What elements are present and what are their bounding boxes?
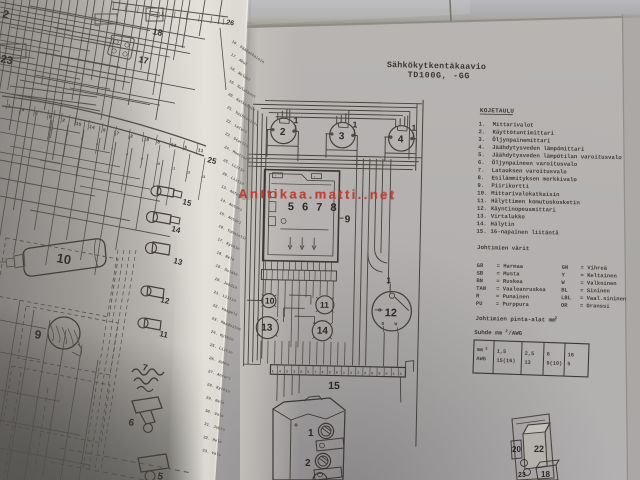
svg-text:PU: PU [476,300,483,307]
svg-text:6: 6 [336,372,338,376]
svg-text:Suhde mm: Suhde mm [474,329,502,337]
svg-text:W: W [394,321,397,327]
svg-text:8: 8 [126,154,128,158]
svg-text:Piirikortti: Piirikortti [491,182,529,190]
svg-text:= Purppura: = Purppura [496,300,530,308]
svg-text:GR: GR [477,262,484,269]
svg-text:15(16): 15(16) [496,358,515,365]
svg-text:18: 18 [541,470,550,479]
svg-text:20: 20 [512,445,521,454]
svg-text:3: 3 [400,373,402,377]
svg-text:2: 2 [305,458,311,469]
svg-text:5 6 7 8: 5 6 7 8 [288,201,339,214]
svg-text:10: 10 [265,296,275,306]
svg-text:1: 1 [353,119,358,129]
svg-text:15.: 15. [476,228,486,235]
svg-text:12: 12 [186,172,190,176]
svg-text:4: 4 [385,373,387,377]
svg-text:1.: 1. [479,121,486,128]
svg-text:mm: mm [477,347,484,353]
svg-text:9: 9 [141,158,143,162]
svg-text:Mittarivalot: Mittarivalot [493,121,534,129]
svg-text:4: 4 [279,370,281,374]
svg-text:8: 8 [378,372,380,376]
svg-text:5.: 5. [478,151,485,158]
svg-text:23: 23 [518,472,526,479]
svg-text:14: 14 [317,326,329,337]
svg-text:5: 5 [567,361,570,367]
svg-text:Sähkökytkentäkaavio: Sähkökytkentäkaavio [387,60,487,72]
svg-text:4.: 4. [478,144,485,151]
svg-text:GN: GN [562,264,569,271]
svg-text:13: 13 [261,322,273,333]
svg-text:BL: BL [561,287,568,294]
svg-text:= Sininen: = Sininen [580,287,610,295]
svg-text:9(10): 9(10) [546,360,562,367]
svg-text:10: 10 [156,163,160,167]
svg-text:SB: SB [476,270,483,277]
svg-text:3: 3 [350,372,352,376]
svg-text:2,5: 2,5 [525,351,535,357]
svg-text:1: 1 [343,372,345,376]
svg-text:3: 3 [51,128,53,132]
svg-text:TAN: TAN [476,285,486,292]
svg-text:10.: 10. [477,189,487,196]
svg-text:2: 2 [364,372,366,376]
svg-text:13: 13 [524,360,531,366]
svg-text:= Harmaa: = Harmaa [497,262,524,270]
svg-text:3: 3 [339,131,345,142]
svg-text:1: 1 [411,123,416,133]
svg-text:7.: 7. [478,167,485,174]
svg-text:3: 3 [293,371,295,375]
svg-text:6.: 6. [478,159,485,166]
svg-text:16: 16 [568,352,575,358]
svg-text:9: 9 [345,214,351,225]
svg-text:6: 6 [300,371,302,375]
svg-text:5: 5 [81,139,83,143]
svg-text:BN: BN [476,277,483,284]
svg-text:7: 7 [357,372,359,376]
svg-text:KOJETAULU: KOJETAULU [480,107,515,115]
svg-text:= Vihreä: = Vihreä [581,264,608,272]
svg-text:1: 1 [308,428,314,439]
svg-text:12: 12 [385,307,397,319]
svg-text:= Ruskea: = Ruskea [496,278,523,286]
svg-text:11.: 11. [477,197,487,204]
svg-text:↑: ↑ [313,175,315,180]
svg-text:OR: OR [561,302,568,309]
svg-text:= Oranssi: = Oranssi [580,302,611,310]
svg-text:1: 1 [386,275,391,285]
svg-text:2: 2 [280,127,286,138]
svg-text:9.: 9. [477,182,484,189]
svg-text:15: 15 [328,380,340,392]
svg-text:1: 1 [272,370,274,374]
svg-text:17: 17 [138,54,150,66]
svg-text:23: 23 [0,53,14,67]
svg-text:12.: 12. [477,205,487,212]
svg-text:14.: 14. [476,220,486,227]
svg-text:AWG: AWG [476,356,486,362]
svg-text:5: 5 [307,371,309,375]
svg-text:2.: 2. [478,128,485,135]
svg-text:3.: 3. [478,136,485,143]
svg-text:9: 9 [329,371,331,375]
svg-text:13: 13 [201,176,205,180]
svg-text:11: 11 [320,300,329,310]
svg-text:1,5: 1,5 [497,349,507,355]
svg-text:= Keltainen: = Keltainen [580,272,616,280]
svg-text:13.: 13. [477,212,487,219]
svg-text:7: 7 [314,371,316,375]
svg-text:18: 18 [152,26,164,38]
svg-text:16-napainen liitäntä: 16-napainen liitäntä [490,228,559,236]
svg-text:10: 10 [55,250,72,267]
svg-text:Virtalukko: Virtalukko [491,213,526,221]
svg-text:= Punainen: = Punainen [496,293,529,301]
svg-text:G: G [381,321,384,327]
svg-text:Johtimien värit: Johtimien värit [477,244,529,252]
svg-text:/AWG: /AWG [508,330,523,337]
svg-text:5: 5 [371,372,373,376]
svg-text:8.: 8. [477,174,484,181]
svg-text:2: 2 [286,371,288,375]
svg-text:1: 1 [393,373,395,377]
svg-text:Hälytin: Hälytin [490,220,515,228]
svg-text:TD100G, -GG: TD100G, -GG [408,71,471,81]
svg-text:1: 1 [294,115,299,125]
svg-text:8: 8 [321,371,323,375]
svg-text:6: 6 [96,144,98,148]
svg-text:4: 4 [398,134,404,145]
svg-text:7: 7 [111,149,113,153]
svg-text:11: 11 [171,167,175,171]
svg-text:= Musta: = Musta [496,270,520,277]
svg-text:6: 6 [547,351,550,357]
svg-text:= Valkoinen: = Valkoinen [580,279,616,287]
svg-text:22: 22 [534,444,544,454]
svg-text:Anttikaa.matti..net: Anttikaa.matti..net [239,187,397,202]
svg-text:LBL: LBL [561,294,572,301]
svg-text:↑: ↑ [274,174,276,179]
